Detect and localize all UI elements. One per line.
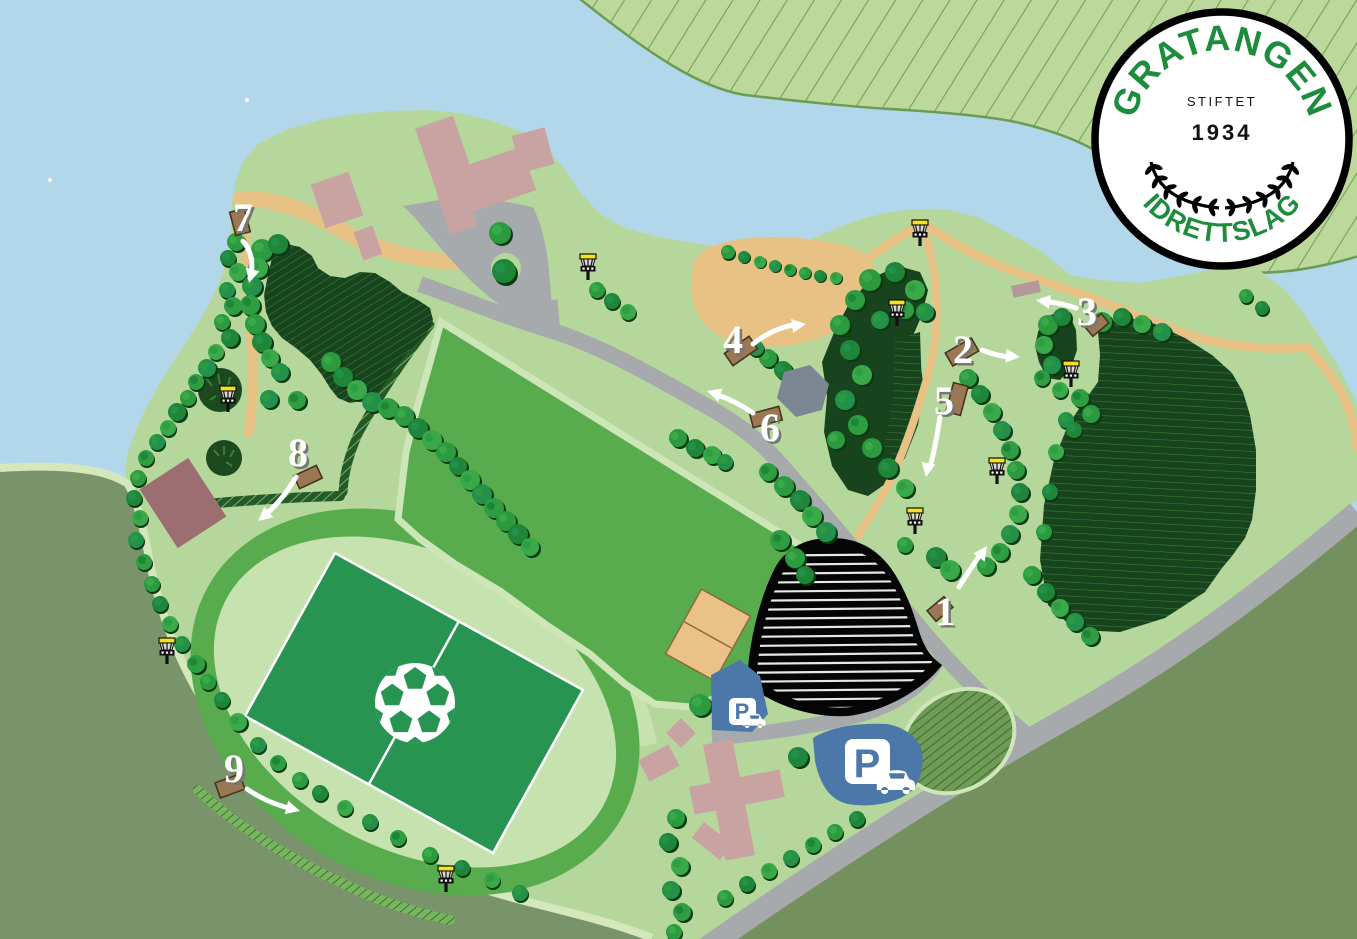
svg-text:6: 6	[760, 405, 780, 450]
svg-text:2: 2	[953, 327, 973, 372]
svg-text:1934: 1934	[1192, 120, 1253, 145]
svg-text:1: 1	[935, 589, 955, 634]
svg-text:7: 7	[233, 195, 253, 240]
svg-text:STIFTET: STIFTET	[1187, 94, 1257, 109]
svg-text:P: P	[854, 742, 881, 786]
svg-text:8: 8	[288, 430, 308, 475]
svg-text:3: 3	[1077, 289, 1097, 334]
svg-text:5: 5	[934, 378, 954, 423]
svg-text:4: 4	[723, 317, 743, 362]
svg-text:9: 9	[224, 746, 244, 791]
